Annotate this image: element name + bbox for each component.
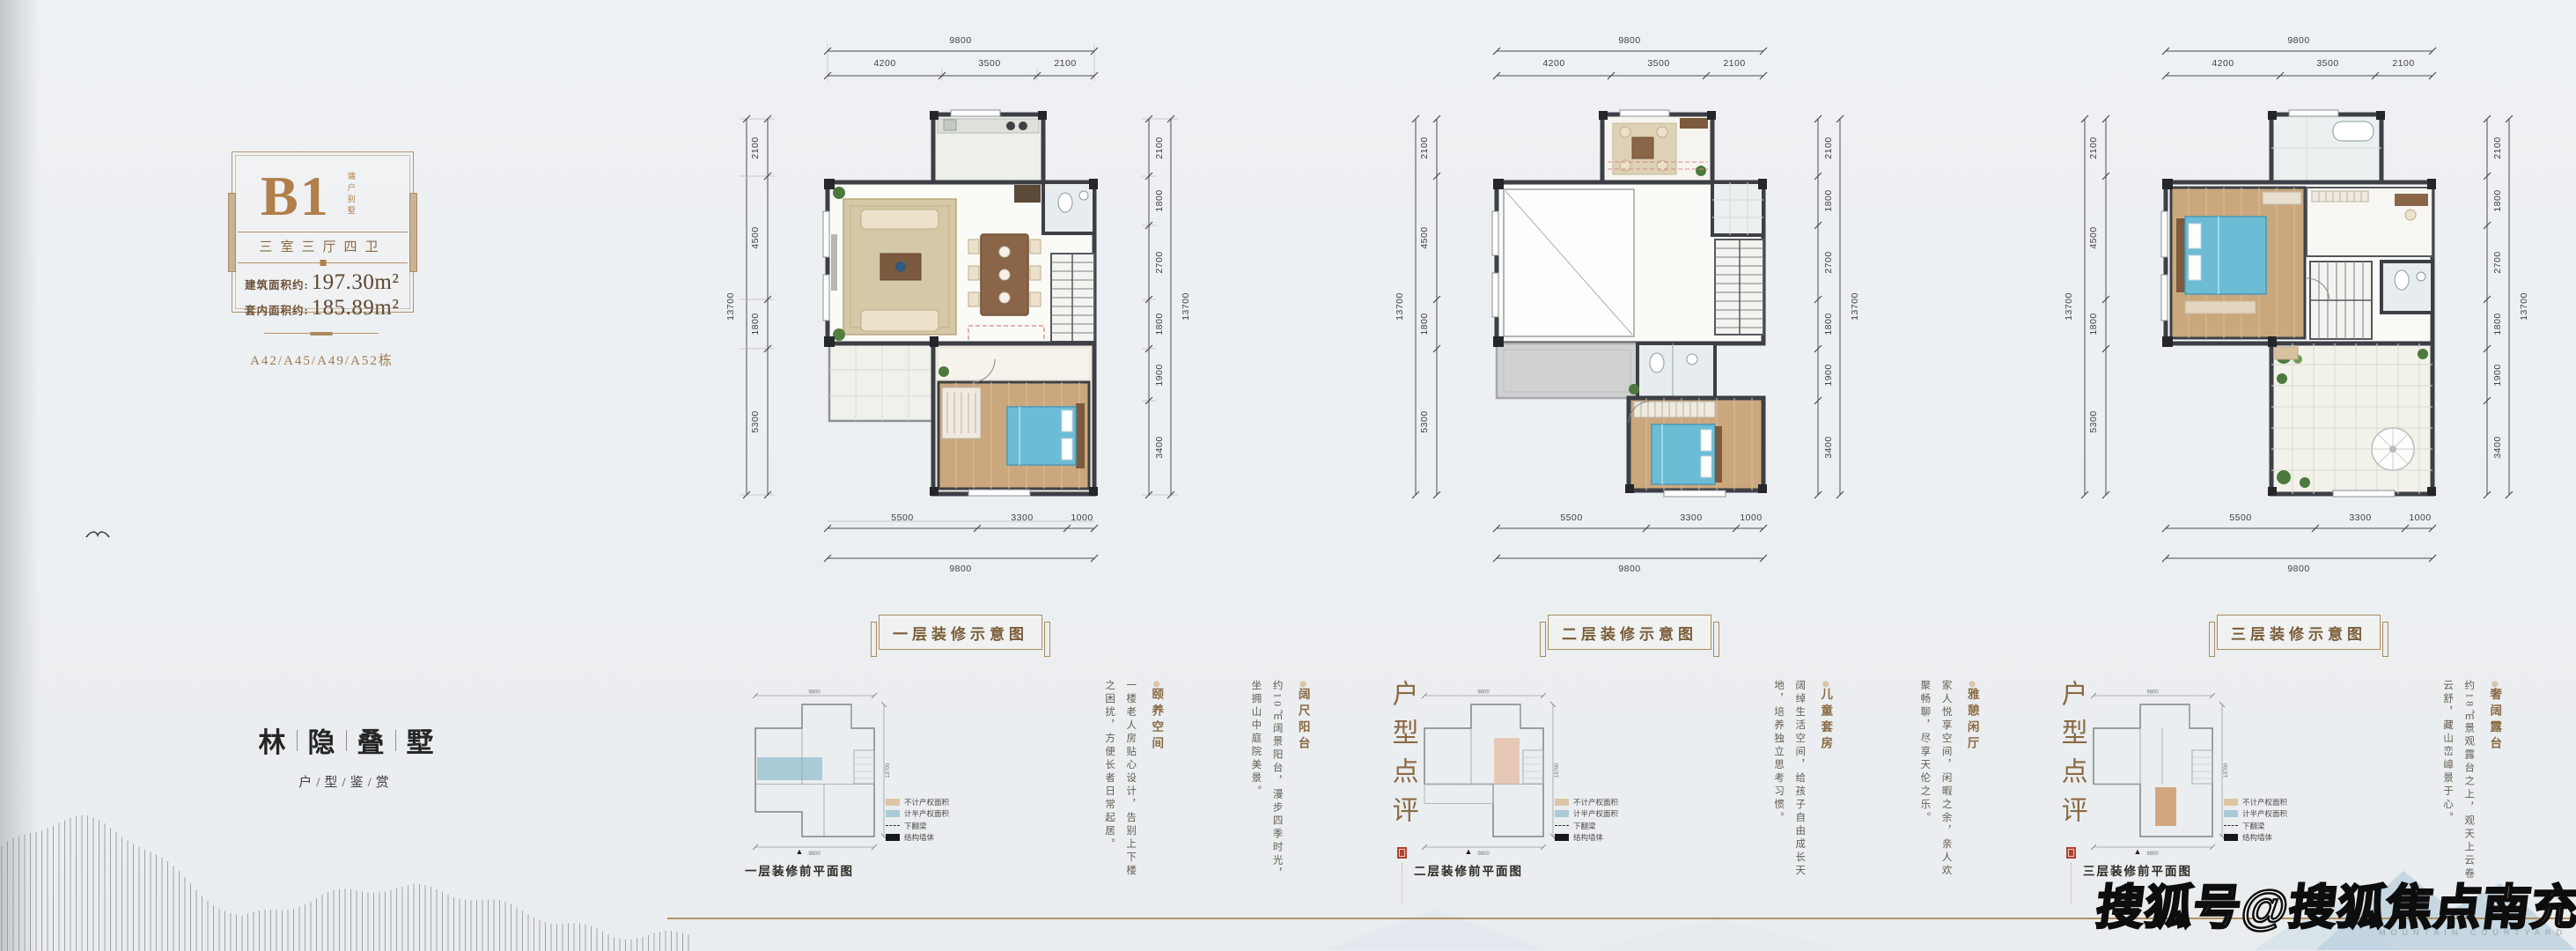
bullet-icon: ◎ — [1822, 680, 1829, 688]
dim-label: 4500 — [2088, 226, 2099, 248]
dim-label: 13700 — [2064, 292, 2074, 321]
feature-title: 儿童套房 — [1819, 688, 1832, 753]
svg-text:9800: 9800 — [2146, 690, 2159, 696]
legend-row: 计半产权面积 — [886, 810, 1018, 818]
floor-plan-level2-drawing — [1461, 79, 1796, 502]
plan-caption-box: 二层装修示意图 — [1548, 615, 1711, 650]
dim-label: 13700 — [1850, 292, 1860, 321]
floor-section-level2: 9800 4200 3500 2100 13700 2100 4500 1800… — [1382, 0, 2051, 951]
legend-row: 计半产权面积 — [2224, 810, 2356, 818]
triangle-icon: ▲ — [1465, 847, 1473, 856]
dim-label: 3300 — [2349, 512, 2371, 523]
legend-label: 计半产权面积 — [1573, 808, 1618, 819]
legend-swatch-blue — [886, 810, 900, 817]
svg-text:9800: 9800 — [1477, 851, 1490, 856]
triangle-icon: ▲ — [796, 847, 804, 856]
feature-title: 奢阔露台 — [2488, 688, 2501, 753]
dim-label: 3400 — [1154, 436, 1165, 458]
bullet-icon: ◎ — [1152, 680, 1160, 688]
card-divider — [264, 333, 379, 334]
dim-label: 5300 — [2088, 410, 2099, 432]
unit-label: B1 — [261, 163, 330, 230]
dim-label: 13700 — [2519, 292, 2529, 321]
dim-label: 1000 — [1071, 512, 1093, 523]
legend-swatch-dash — [1555, 825, 1569, 826]
dim-label: 2100 — [2392, 58, 2414, 69]
dim-label: 5500 — [2229, 512, 2251, 523]
inner-area-value: 185.89m² — [312, 296, 400, 321]
dim-label: 1800 — [1823, 189, 1834, 211]
dim-label: 1800 — [750, 313, 761, 335]
dim-label: 1800 — [1154, 189, 1165, 211]
plan-caption-box: 三层装修示意图 — [2217, 615, 2381, 650]
legend-swatch-solid — [886, 834, 900, 841]
dim-label: 5300 — [750, 410, 761, 432]
small-plan-level3: 9800 13700 9800 — [2078, 689, 2229, 856]
small-plan-caption: 一层装修前平面图 — [745, 861, 854, 879]
mountain-lines-art — [0, 788, 704, 951]
legend-label: 不计产权面积 — [2242, 797, 2287, 807]
poster-stage: B1 端户别墅 三室三厅四卫 建筑面积约:197.30m² 套内面积约:185.… — [0, 0, 2576, 951]
dim-label: 3300 — [1011, 512, 1033, 523]
svg-text:9800: 9800 — [808, 851, 821, 856]
plan-caption-box: 一层装修示意图 — [879, 615, 1042, 650]
legend-row: 计半产权面积 — [1555, 810, 1687, 818]
legend-label: 下翻梁 — [1573, 821, 1596, 831]
plan-legend: 不计产权面积 计半产权面积 下翻梁 结构墙体 — [1555, 798, 1687, 845]
plan-legend: 不计产权面积 计半产权面积 下翻梁 结构墙体 — [886, 798, 1018, 845]
dim-label: 1800 — [2088, 313, 2099, 335]
divider-square-icon — [320, 260, 326, 266]
dim-label: 5500 — [891, 512, 913, 523]
dim-label: 4500 — [1419, 226, 1430, 248]
dim-label: 13700 — [1395, 292, 1405, 321]
buildings-label: A42/A45/A49/A52栋 — [214, 350, 430, 369]
legend-row: 不计产权面积 — [2224, 798, 2356, 806]
floor-section-level1: 9800 4200 3500 2100 13700 2100 4500 1800… — [713, 0, 1382, 951]
brand-block: 林 隐 叠 墅 户/型/鉴/赏 — [236, 720, 456, 791]
dim-label: 4500 — [750, 226, 761, 248]
card-pillar-left-icon — [228, 193, 236, 272]
legend-swatch-tan — [1555, 799, 1569, 806]
feature-title: 雅憩闲厅 — [1966, 688, 1979, 753]
brand-separator — [395, 730, 396, 751]
dim-label: 4200 — [2212, 58, 2234, 69]
legend-label: 计半产权面积 — [904, 808, 949, 819]
dim-label: 1900 — [1154, 364, 1165, 386]
legend-swatch-blue — [2224, 810, 2238, 817]
dim-label: 2100 — [2088, 136, 2099, 158]
dim-label: 9800 — [1618, 564, 1640, 574]
dim-label: 3500 — [2316, 58, 2338, 69]
dim-label: 2100 — [2492, 136, 2503, 158]
svg-text:9800: 9800 — [2146, 851, 2159, 856]
brand-char: 隐 — [308, 720, 335, 760]
dim-label: 3300 — [1680, 512, 1702, 523]
dim-label: 1900 — [1823, 364, 1834, 386]
brand-char: 叠 — [357, 720, 385, 760]
small-plan-level2: 9800 13700 9800 — [1409, 689, 1560, 856]
floor-plan-level3-drawing — [2131, 79, 2465, 502]
dim-label: 1000 — [1740, 512, 1762, 523]
dim-label: 4200 — [1542, 58, 1564, 69]
legend-swatch-tan — [2224, 799, 2238, 806]
legend-row: 下翻梁 — [1555, 822, 1687, 829]
dim-label: 9800 — [949, 564, 971, 574]
dim-label: 9800 — [949, 35, 971, 46]
dim-label: 13700 — [725, 292, 736, 321]
dim-label: 2700 — [1823, 251, 1834, 273]
legend-swatch-solid — [1555, 834, 1569, 841]
dim-label: 3500 — [978, 58, 1000, 69]
dim-label: 4200 — [873, 58, 895, 69]
svg-text:9800: 9800 — [1477, 690, 1490, 696]
brand-separator — [297, 730, 298, 751]
dim-label: 2100 — [1054, 58, 1076, 69]
legend-label: 不计产权面积 — [904, 797, 949, 807]
small-plan-level1: 9800 13700 9800 — [740, 689, 891, 856]
legend-label: 不计产权面积 — [1573, 797, 1618, 807]
dim-label: 1800 — [2492, 189, 2503, 211]
dim-label: 13700 — [1181, 292, 1191, 321]
dim-label: 2700 — [1154, 251, 1165, 273]
legend-row: 结构墙体 — [1555, 834, 1687, 842]
dim-label: 2100 — [1419, 136, 1430, 158]
legend-swatch-dash — [2224, 825, 2238, 826]
legend-row: 下翻梁 — [886, 822, 1018, 829]
feature-title: 阔尺阳台 — [1297, 688, 1310, 753]
dim-label: 3400 — [2492, 436, 2503, 458]
dim-label: 5300 — [1419, 410, 1430, 432]
legend-swatch-solid — [2224, 834, 2238, 841]
legend-label: 计半产权面积 — [2242, 808, 2287, 819]
build-area-value: 197.30m² — [312, 270, 400, 295]
dim-label: 2700 — [2492, 251, 2503, 273]
svg-text:13700: 13700 — [2224, 763, 2229, 778]
feature-title: 颐养空间 — [1150, 688, 1163, 753]
bullet-icon: ◎ — [1299, 680, 1307, 688]
inner-area-label: 套内面积约: — [245, 301, 309, 318]
dim-label: 2100 — [750, 136, 761, 158]
legend-label: 下翻梁 — [904, 821, 927, 831]
svg-text:13700: 13700 — [1555, 763, 1560, 778]
unit-card: B1 端户别墅 三室三厅四卫 建筑面积约:197.30m² 套内面积约:185.… — [232, 151, 414, 313]
dim-label: 2100 — [1823, 136, 1834, 158]
brand-char: 墅 — [407, 720, 434, 760]
legend-label: 结构墙体 — [2242, 832, 2272, 843]
dim-label: 1800 — [1419, 313, 1430, 335]
legend-label: 结构墙体 — [904, 832, 934, 843]
unit-tag: 端户别墅 — [346, 172, 357, 217]
svg-text:13700: 13700 — [886, 763, 891, 778]
brand-char: 林 — [259, 720, 286, 760]
legend-swatch-dash — [886, 825, 900, 826]
bullet-icon: ◎ — [1969, 680, 1976, 688]
card-pillar-right-icon — [409, 193, 417, 272]
floor-plan-level1-drawing — [792, 79, 1127, 502]
svg-text:9800: 9800 — [808, 690, 821, 696]
legend-row: 结构墙体 — [2224, 834, 2356, 842]
brand-subtitle: 户/型/鉴/赏 — [236, 772, 456, 791]
legend-label: 结构墙体 — [1573, 832, 1603, 843]
bird-icon — [85, 528, 111, 542]
legend-swatch-tan — [886, 799, 900, 806]
dim-label: 1800 — [1154, 313, 1165, 335]
unit-layout: 三室三厅四卫 — [238, 232, 408, 263]
dim-label: 1800 — [2492, 313, 2503, 335]
dim-label: 9800 — [2287, 35, 2309, 46]
dim-label: 5500 — [1560, 512, 1582, 523]
dim-label: 2100 — [1723, 58, 1745, 69]
brand-separator — [346, 730, 347, 751]
plan-legend: 不计产权面积 计半产权面积 下翻梁 结构墙体 — [2224, 798, 2356, 845]
legend-swatch-blue — [1555, 810, 1569, 817]
legend-row: 不计产权面积 — [886, 798, 1018, 806]
dim-label: 2100 — [1154, 136, 1165, 158]
legend-row: 不计产权面积 — [1555, 798, 1687, 806]
triangle-icon: ▲ — [2134, 847, 2142, 856]
watermark: 搜狐号@搜狐焦点南充站 — [2093, 868, 2576, 938]
dim-label: 3400 — [1823, 436, 1834, 458]
bullet-icon: ◎ — [2491, 680, 2499, 688]
dim-label: 9800 — [2287, 564, 2309, 574]
dim-label: 3500 — [1647, 58, 1669, 69]
floor-section-level3: 9800 4200 3500 2100 13700 2100 4500 1800… — [2051, 0, 2576, 951]
dim-label: 1800 — [1823, 313, 1834, 335]
dim-label: 1900 — [2492, 364, 2503, 386]
dim-label: 9800 — [1618, 35, 1640, 46]
build-area-label: 建筑面积约: — [245, 276, 309, 292]
dim-label: 1000 — [2409, 512, 2431, 523]
legend-row: 结构墙体 — [886, 834, 1018, 842]
legend-row: 下翻梁 — [2224, 822, 2356, 829]
unit-layout-text: 三室三厅四卫 — [259, 240, 386, 254]
legend-label: 下翻梁 — [2242, 821, 2265, 831]
